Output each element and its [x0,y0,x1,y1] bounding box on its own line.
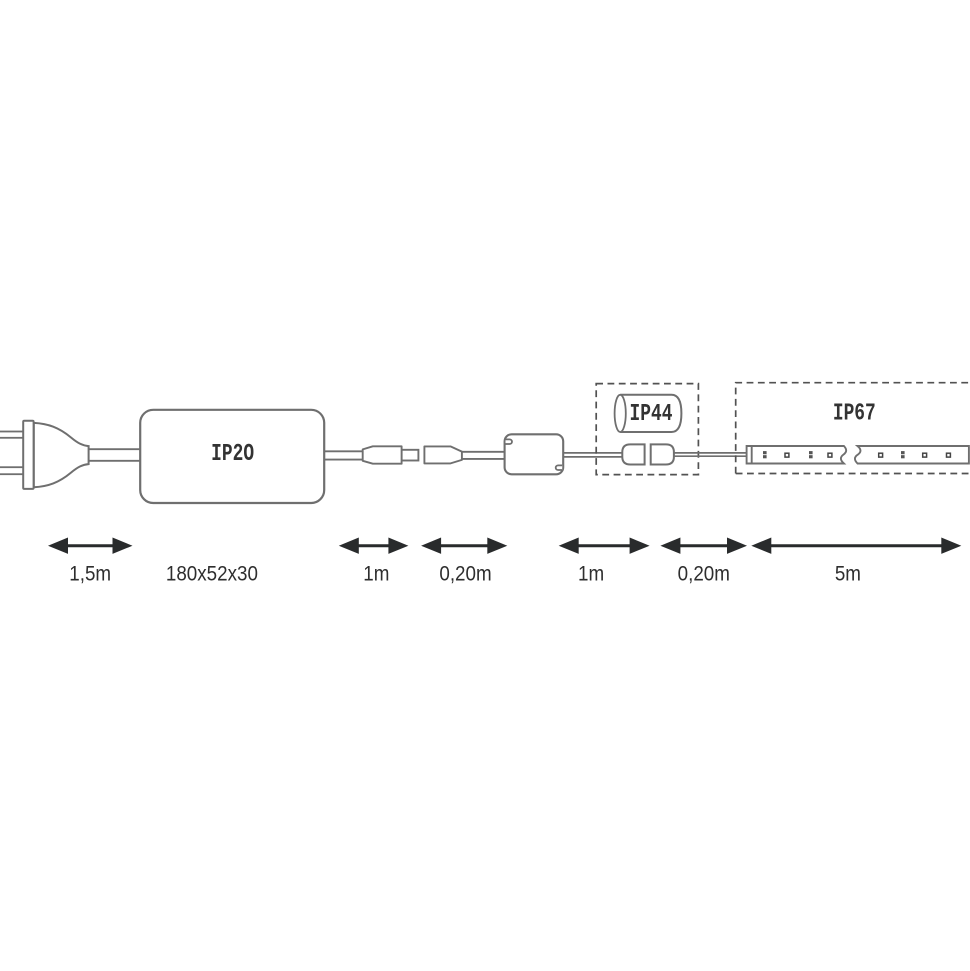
svg-text:1,5m: 1,5m [69,563,111,586]
svg-text:IP2O: IP2O [211,441,254,468]
svg-text:0,20m: 0,20m [678,563,730,586]
svg-text:180x52x30: 180x52x30 [166,563,258,586]
svg-text:5m: 5m [835,563,861,586]
svg-text:1m: 1m [578,563,604,586]
svg-text:1m: 1m [363,563,389,586]
svg-text:IP44: IP44 [630,401,673,428]
svg-text:IP67: IP67 [833,400,876,427]
svg-text:0,20m: 0,20m [439,563,491,586]
